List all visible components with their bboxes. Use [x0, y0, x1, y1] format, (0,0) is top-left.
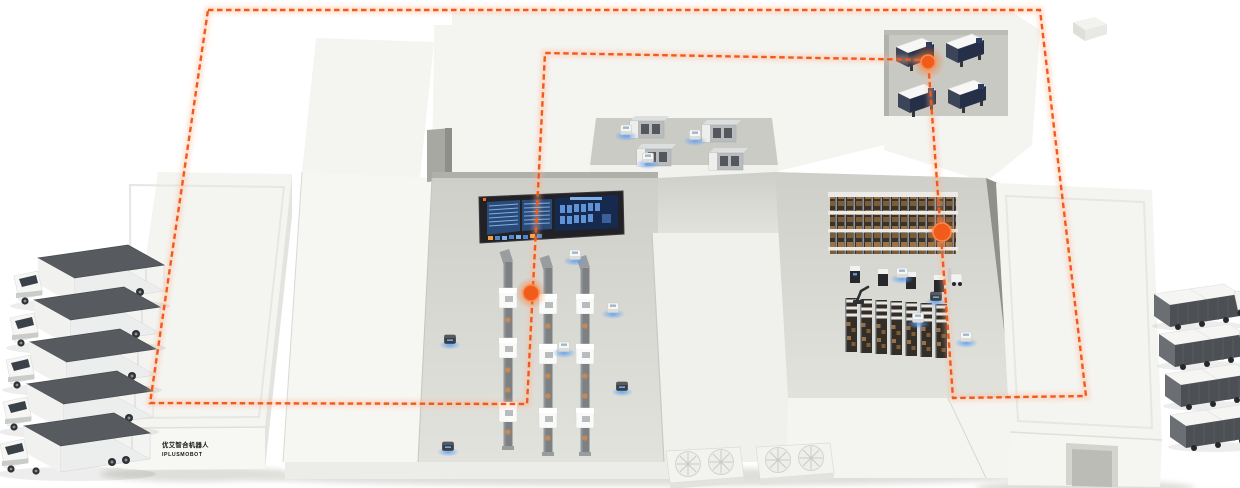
route-waypoint-1: [911, 45, 945, 79]
trucks-outbound: [1152, 284, 1240, 452]
dashboard-led: [483, 198, 486, 201]
rack-column: [920, 303, 932, 357]
truck: [1157, 324, 1240, 371]
fan-unit-2: [756, 443, 834, 485]
edge-line: [122, 427, 265, 428]
route-waypoint-2: [926, 216, 958, 248]
rack-column: [890, 301, 902, 355]
truck: [1152, 284, 1240, 331]
isometric-factory-scene: 优艾智合机器人 IPLUSMOBOT: [0, 0, 1240, 488]
corridor-floor: [658, 172, 788, 233]
dock-notch: [1066, 443, 1118, 487]
fan-unit-1: [666, 447, 744, 488]
roof-center-south: [652, 233, 802, 462]
truck: [1168, 405, 1240, 452]
main-building: [283, 12, 1107, 479]
south-front-face: [285, 462, 672, 479]
rack-column: [845, 298, 857, 352]
rooftop-unit: [1073, 17, 1107, 41]
rack-column: [875, 300, 887, 354]
production-dashboard: [479, 191, 624, 243]
factory-illustration: 优艾智合机器人 IPLUSMOBOT: [0, 0, 1240, 488]
roof-west-band: [302, 38, 434, 178]
rack-column: [860, 299, 872, 353]
trucks-inbound: [0, 245, 170, 481]
truck: [1163, 364, 1240, 411]
rack-column: [905, 302, 917, 356]
cell-wall-shade: [884, 30, 1008, 35]
logo-text-cn: 优艾智合机器人: [162, 440, 209, 449]
roof-west-side: [283, 172, 432, 462]
route-waypoint-3: [515, 277, 547, 309]
logo-text-en: IPLUSMOBOT: [162, 452, 203, 458]
cell-wall-shade: [884, 30, 889, 116]
screen-title-bar: [570, 197, 602, 200]
truck: [0, 413, 156, 481]
